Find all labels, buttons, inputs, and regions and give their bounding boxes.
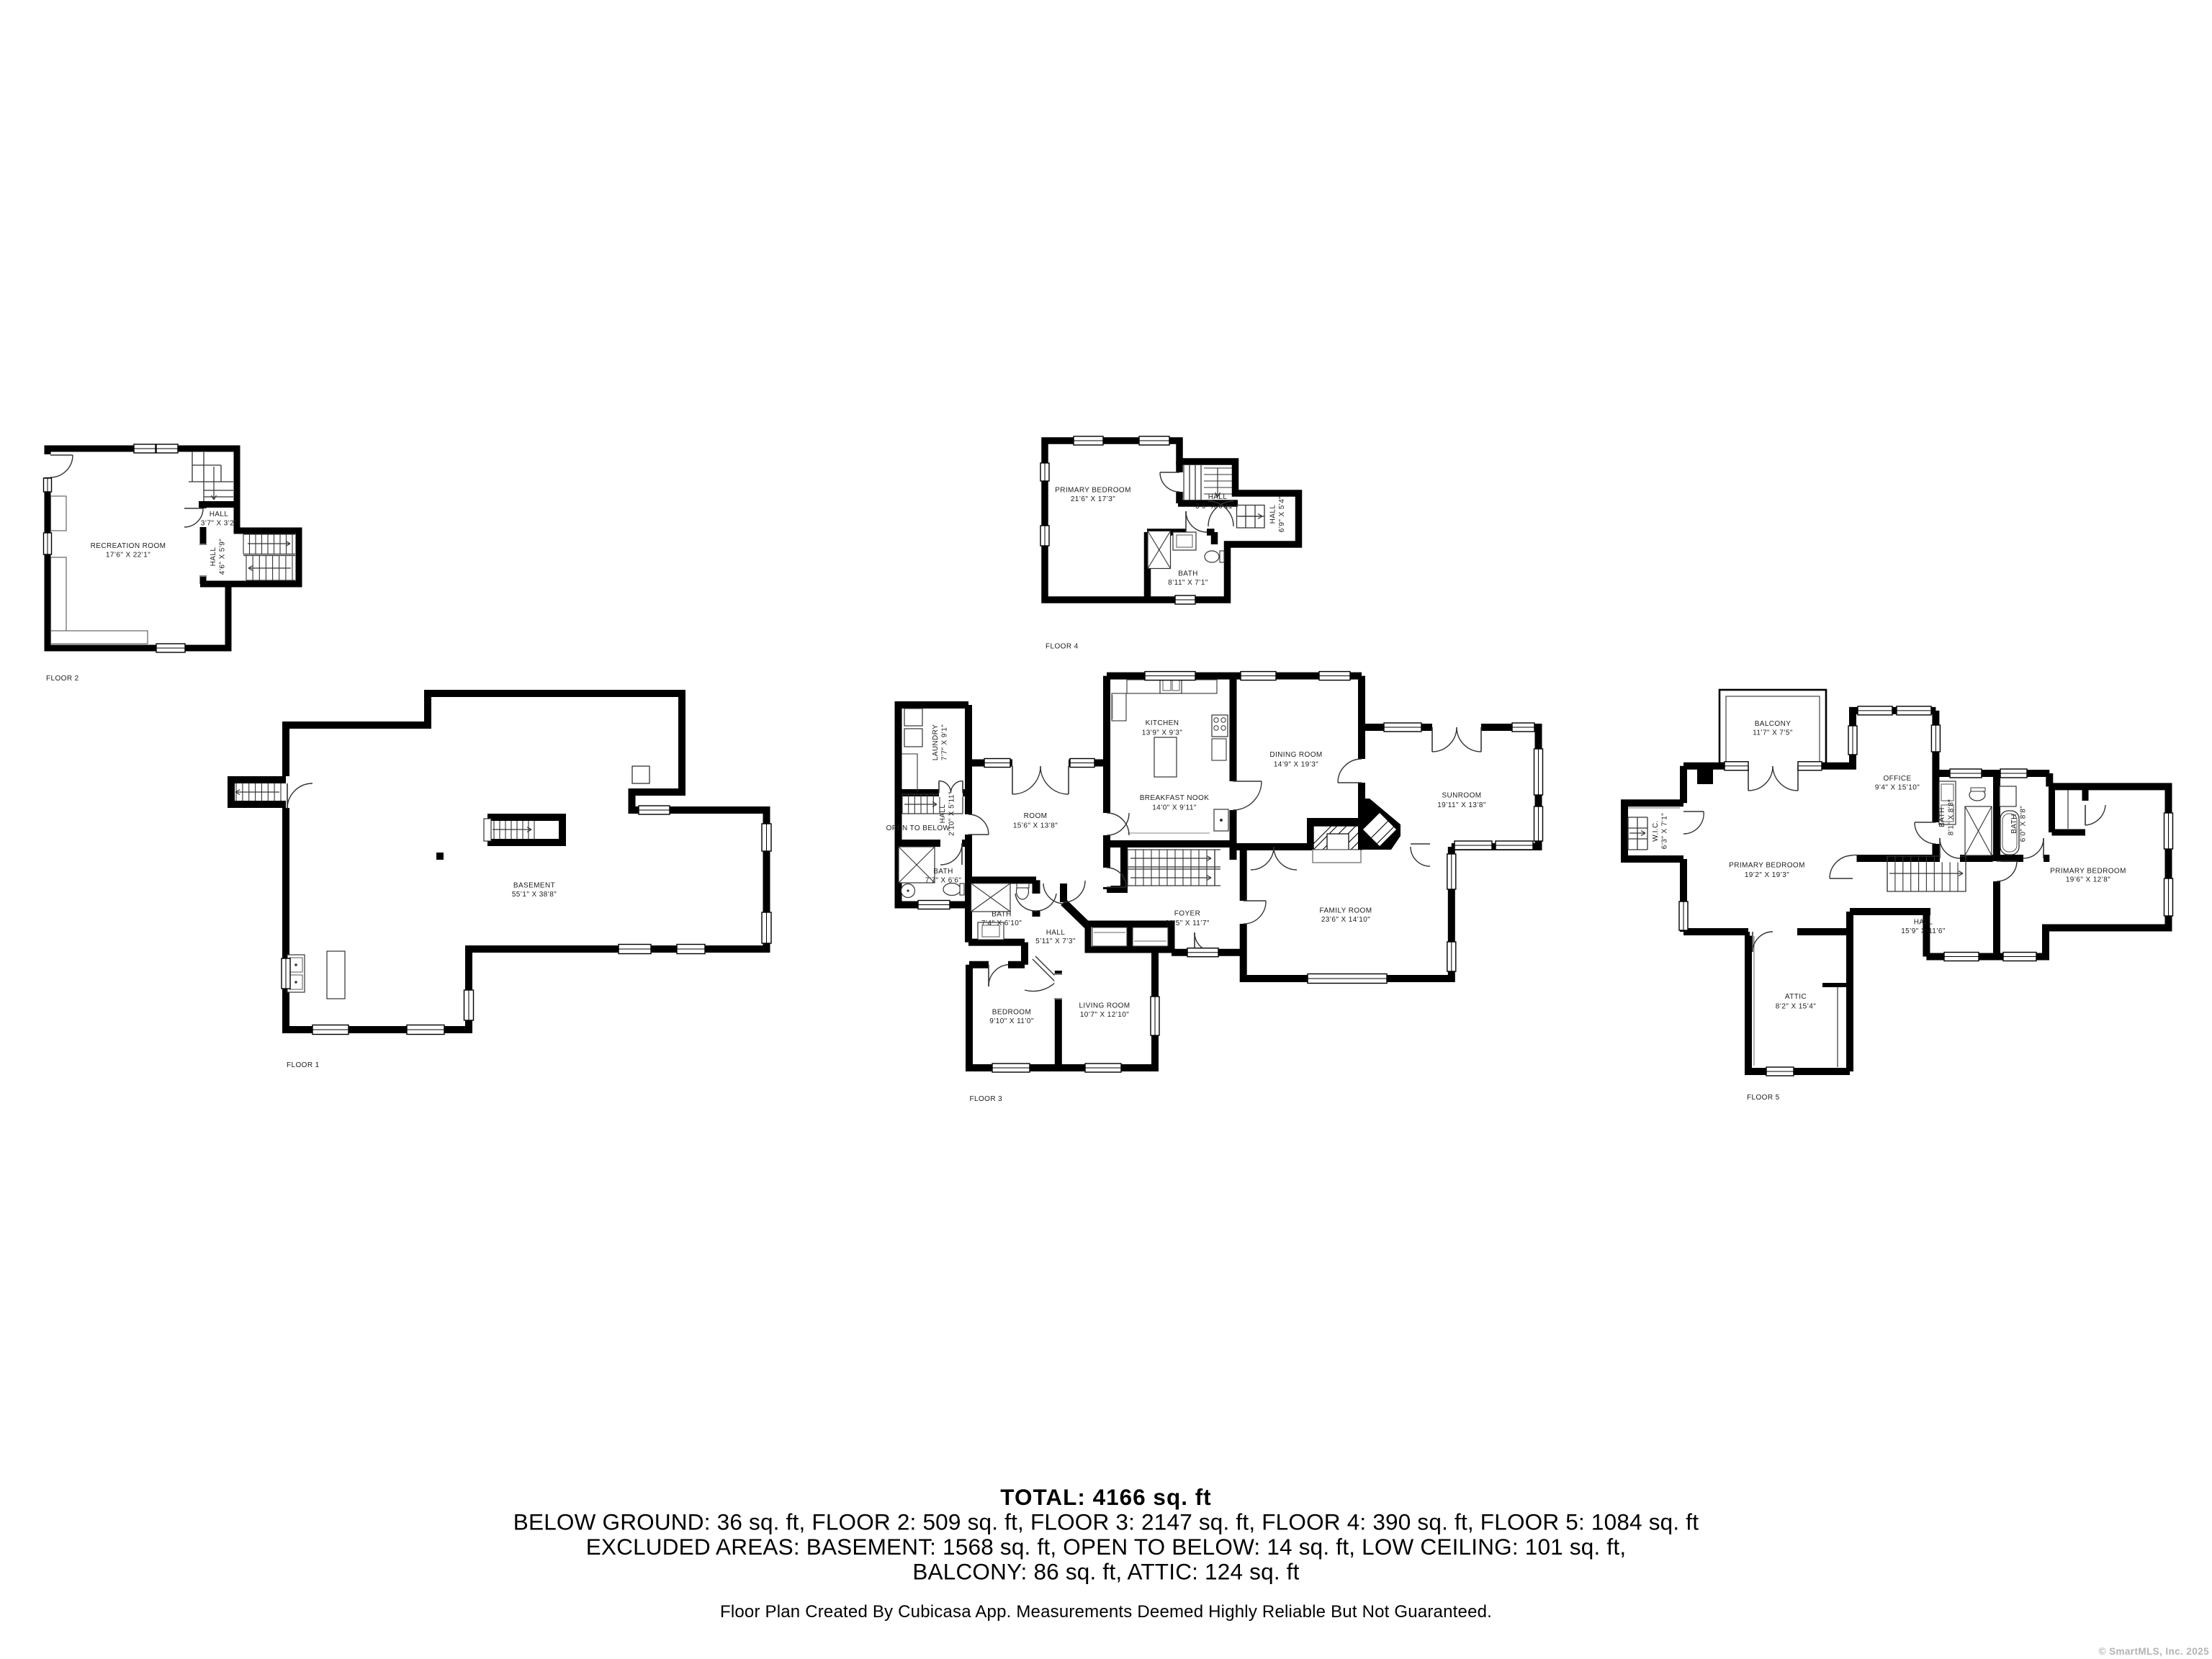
svg-text:PRIMARY BEDROOM: PRIMARY BEDROOM	[1729, 862, 1805, 870]
svg-text:© SmartMLS, Inc. 2025: © SmartMLS, Inc. 2025	[2099, 1646, 2209, 1657]
svg-text:3’6" X 6’11": 3’6" X 6’11"	[1195, 503, 1236, 511]
svg-text:14’9" X 19’3": 14’9" X 19’3"	[1274, 761, 1318, 769]
svg-text:KITCHEN: KITCHEN	[1146, 719, 1179, 727]
svg-text:BATH: BATH	[933, 868, 953, 876]
svg-text:11’7" X 7’5": 11’7" X 7’5"	[1753, 729, 1793, 737]
svg-text:23’6" X 14’10": 23’6" X 14’10"	[1321, 916, 1370, 924]
svg-text:15’9" X 11’6": 15’9" X 11’6"	[1901, 927, 1946, 935]
svg-text:HALL: HALL	[210, 511, 229, 518]
svg-text:OPEN TO BELOW: OPEN TO BELOW	[886, 824, 950, 832]
svg-text:FLOOR 3: FLOOR 3	[970, 1095, 1003, 1103]
svg-text:BELOW GROUND: 36 sq. ft, FLOOR: BELOW GROUND: 36 sq. ft, FLOOR 2: 509 sq…	[513, 1509, 1699, 1535]
svg-text:6’0" X 8’8": 6’0" X 8’8"	[2020, 806, 2028, 842]
svg-text:PRIMARY BEDROOM: PRIMARY BEDROOM	[2050, 868, 2126, 876]
svg-text:7’7" X 9’1": 7’7" X 9’1"	[941, 724, 949, 760]
svg-text:14’0" X 9’11": 14’0" X 9’11"	[1152, 804, 1197, 812]
svg-text:13’9" X 9’3": 13’9" X 9’3"	[1142, 729, 1182, 737]
svg-text:21’6" X 17’3": 21’6" X 17’3"	[1071, 495, 1115, 503]
svg-text:HALL: HALL	[1914, 919, 1933, 927]
svg-text:EXCLUDED AREAS: BASEMENT: 1568: EXCLUDED AREAS: BASEMENT: 1568 sq. ft, O…	[586, 1534, 1627, 1560]
svg-text:7’4" X 6’10": 7’4" X 6’10"	[981, 920, 1022, 927]
svg-text:RECREATION ROOM: RECREATION ROOM	[91, 542, 166, 550]
svg-text:DINING ROOM: DINING ROOM	[1269, 751, 1322, 759]
svg-text:8’2" X 15’4": 8’2" X 15’4"	[1776, 1003, 1816, 1011]
svg-text:PRIMARY BEDROOM: PRIMARY BEDROOM	[1055, 487, 1131, 495]
svg-text:LIVING ROOM: LIVING ROOM	[1079, 1002, 1130, 1010]
svg-text:FLOOR 1: FLOOR 1	[287, 1061, 320, 1069]
svg-text:19’11" X 13’8": 19’11" X 13’8"	[1437, 801, 1486, 809]
svg-text:BATH: BATH	[2010, 814, 2018, 834]
svg-text:BALCONY: BALCONY	[1755, 720, 1791, 728]
svg-text:19’2" X 19’3": 19’2" X 19’3"	[1745, 871, 1789, 879]
svg-text:10’7" X 12’10": 10’7" X 12’10"	[1080, 1011, 1129, 1019]
svg-text:W.I.C.: W.I.C.	[1652, 820, 1660, 842]
svg-text:19’6" X 12’8": 19’6" X 12’8"	[2066, 876, 2110, 884]
svg-text:8’11" X 7’1": 8’11" X 7’1"	[1168, 579, 1208, 587]
svg-text:ROOM: ROOM	[1024, 812, 1048, 820]
svg-text:BATH: BATH	[1938, 807, 1946, 827]
svg-text:TOTAL: 4166 sq. ft: TOTAL: 4166 sq. ft	[1000, 1484, 1211, 1510]
svg-text:8’1" X 8’8": 8’1" X 8’8"	[1948, 799, 1956, 835]
svg-text:HALL: HALL	[1208, 493, 1228, 501]
svg-text:15’6" X 13’8": 15’6" X 13’8"	[1013, 822, 1058, 830]
svg-text:6’3" X 7’1": 6’3" X 7’1"	[1661, 813, 1669, 849]
svg-text:HALL: HALL	[939, 804, 947, 824]
svg-text:OFFICE: OFFICE	[1883, 775, 1911, 783]
svg-text:FLOOR 2: FLOOR 2	[46, 675, 79, 683]
svg-text:5’11" X 7’3": 5’11" X 7’3"	[1035, 938, 1076, 945]
svg-text:FAMILY ROOM: FAMILY ROOM	[1320, 907, 1372, 915]
svg-text:4’6" X 5’9": 4’6" X 5’9"	[219, 539, 227, 575]
svg-text:6’9" X 5’4": 6’9" X 5’4"	[1278, 496, 1286, 532]
svg-text:7’7" X 6’6": 7’7" X 6’6"	[925, 877, 961, 885]
svg-text:SUNROOM: SUNROOM	[1442, 792, 1481, 800]
svg-text:FLOOR 4: FLOOR 4	[1046, 643, 1079, 651]
svg-text:Floor Plan Created By Cubicasa: Floor Plan Created By Cubicasa App. Meas…	[720, 1602, 1492, 1622]
svg-text:BATH: BATH	[992, 911, 1012, 919]
svg-text:HALL: HALL	[1269, 505, 1277, 524]
svg-text:HALL: HALL	[1046, 929, 1066, 937]
svg-text:9’4" X 15’10": 9’4" X 15’10"	[1875, 784, 1920, 792]
svg-text:FOYER: FOYER	[1174, 910, 1200, 918]
svg-text:17’6" X 22’1": 17’6" X 22’1"	[106, 552, 150, 559]
svg-text:BEDROOM: BEDROOM	[992, 1009, 1031, 1017]
svg-text:3’7" X 3’2": 3’7" X 3’2"	[201, 520, 237, 528]
svg-text:HALL: HALL	[210, 547, 217, 567]
svg-text:BATH: BATH	[1178, 570, 1198, 578]
svg-text:FLOOR 5: FLOOR 5	[1747, 1094, 1780, 1102]
svg-text:ATTIC: ATTIC	[1785, 993, 1807, 1001]
svg-text:9’10" X 11’0": 9’10" X 11’0"	[989, 1017, 1034, 1025]
svg-text:BREAKFAST NOOK: BREAKFAST NOOK	[1140, 794, 1210, 802]
svg-text:LAUNDRY: LAUNDRY	[932, 724, 940, 760]
svg-text:20’5" X 11’7": 20’5" X 11’7"	[1165, 920, 1210, 927]
svg-text:BALCONY: 86 sq. ft, ATTIC: 124: BALCONY: 86 sq. ft, ATTIC: 124 sq. ft	[912, 1559, 1299, 1585]
svg-text:BASEMENT: BASEMENT	[513, 882, 555, 890]
svg-text:55’1" X 38’8": 55’1" X 38’8"	[512, 891, 557, 899]
